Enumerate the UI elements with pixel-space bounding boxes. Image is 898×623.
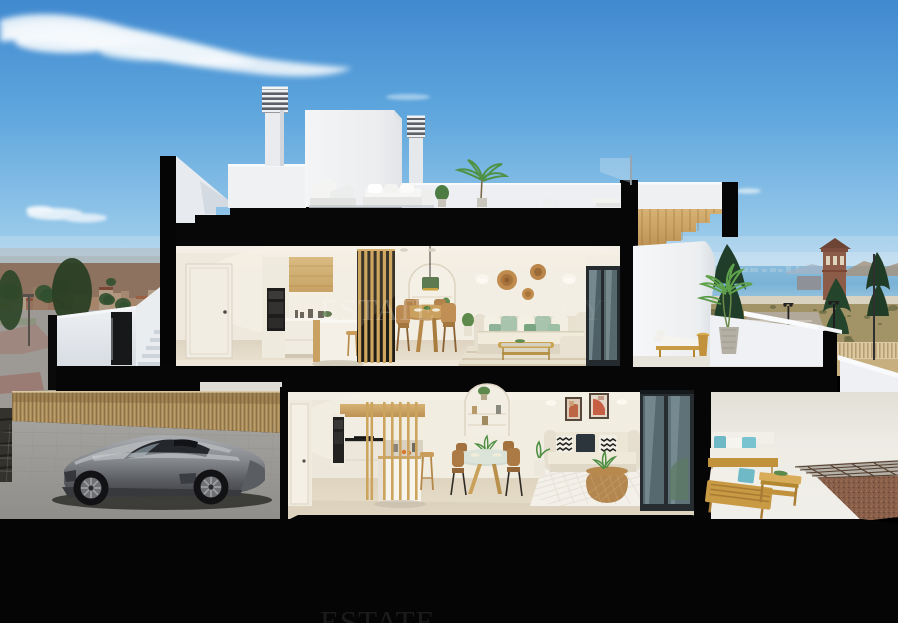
- svg-text:AGENCY: AGENCY: [470, 292, 605, 327]
- svg-text:ESTATE: ESTATE: [320, 604, 435, 623]
- svg-text:ESTATE: ESTATE: [320, 292, 435, 327]
